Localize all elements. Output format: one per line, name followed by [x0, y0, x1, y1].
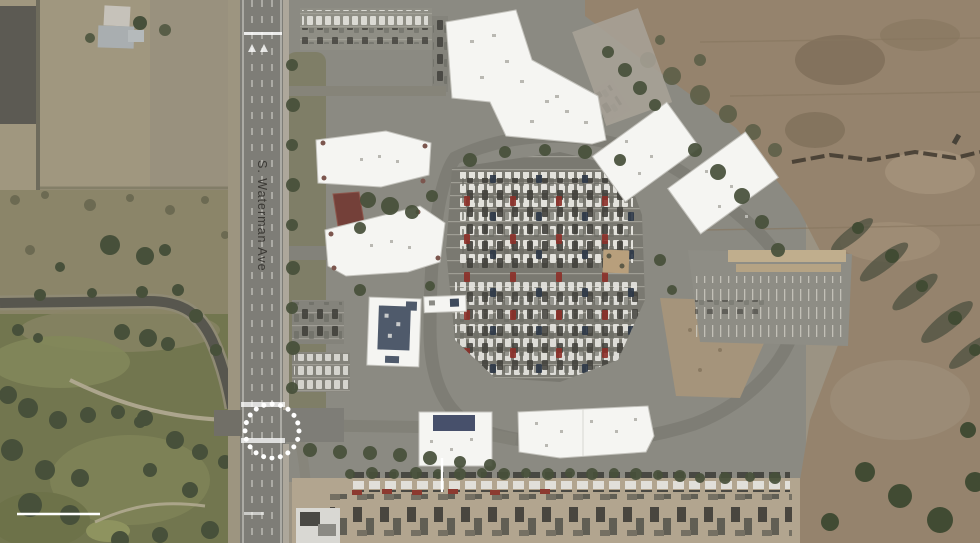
road-shoulder-west: [228, 0, 242, 543]
intersection: [286, 408, 344, 442]
parked-cars: [455, 172, 640, 375]
east-parking-lot: [688, 250, 852, 346]
covered-parking-carports: [728, 250, 846, 262]
west-lot-b: [292, 352, 350, 392]
yard-office-building: [296, 508, 340, 543]
aerial-map: S. Waterman Ave: [0, 0, 980, 543]
building-center-small: [367, 297, 421, 367]
carport-row-2: [736, 264, 841, 272]
plaza-square: [603, 250, 630, 274]
crosswalk-north: [244, 32, 282, 35]
fields-northwest: [0, 0, 242, 316]
building-office-north: [316, 131, 431, 187]
center-driveway: [286, 246, 328, 260]
aerial-map-canvas: S. Waterman Ave: [0, 0, 980, 543]
yard-vehicles: [330, 494, 792, 543]
north-driveway: [286, 86, 446, 96]
building-south-b: [518, 406, 654, 458]
building-strip-small: [424, 295, 467, 312]
dark-field: [0, 6, 36, 124]
west-lot-a: [292, 300, 344, 344]
north-lot: [300, 8, 432, 50]
street-label: S. Waterman Ave: [255, 160, 269, 272]
